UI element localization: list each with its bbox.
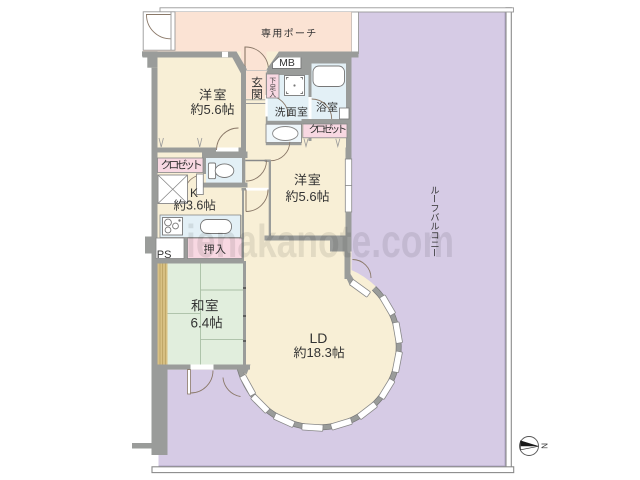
svg-text:LD: LD [310, 330, 328, 346]
svg-text:MB: MB [279, 57, 295, 69]
svg-text:PS: PS [157, 249, 172, 261]
svg-text:6.4: 6.4 [191, 315, 210, 330]
svg-text:ienakanote.com: ienakanote.com [186, 215, 454, 267]
svg-text:5.6: 5.6 [204, 102, 222, 117]
svg-text:3.6: 3.6 [186, 199, 203, 213]
svg-text:5.6: 5.6 [299, 189, 317, 204]
svg-text:18.3: 18.3 [307, 345, 332, 360]
svg-text:N: N [540, 443, 549, 449]
